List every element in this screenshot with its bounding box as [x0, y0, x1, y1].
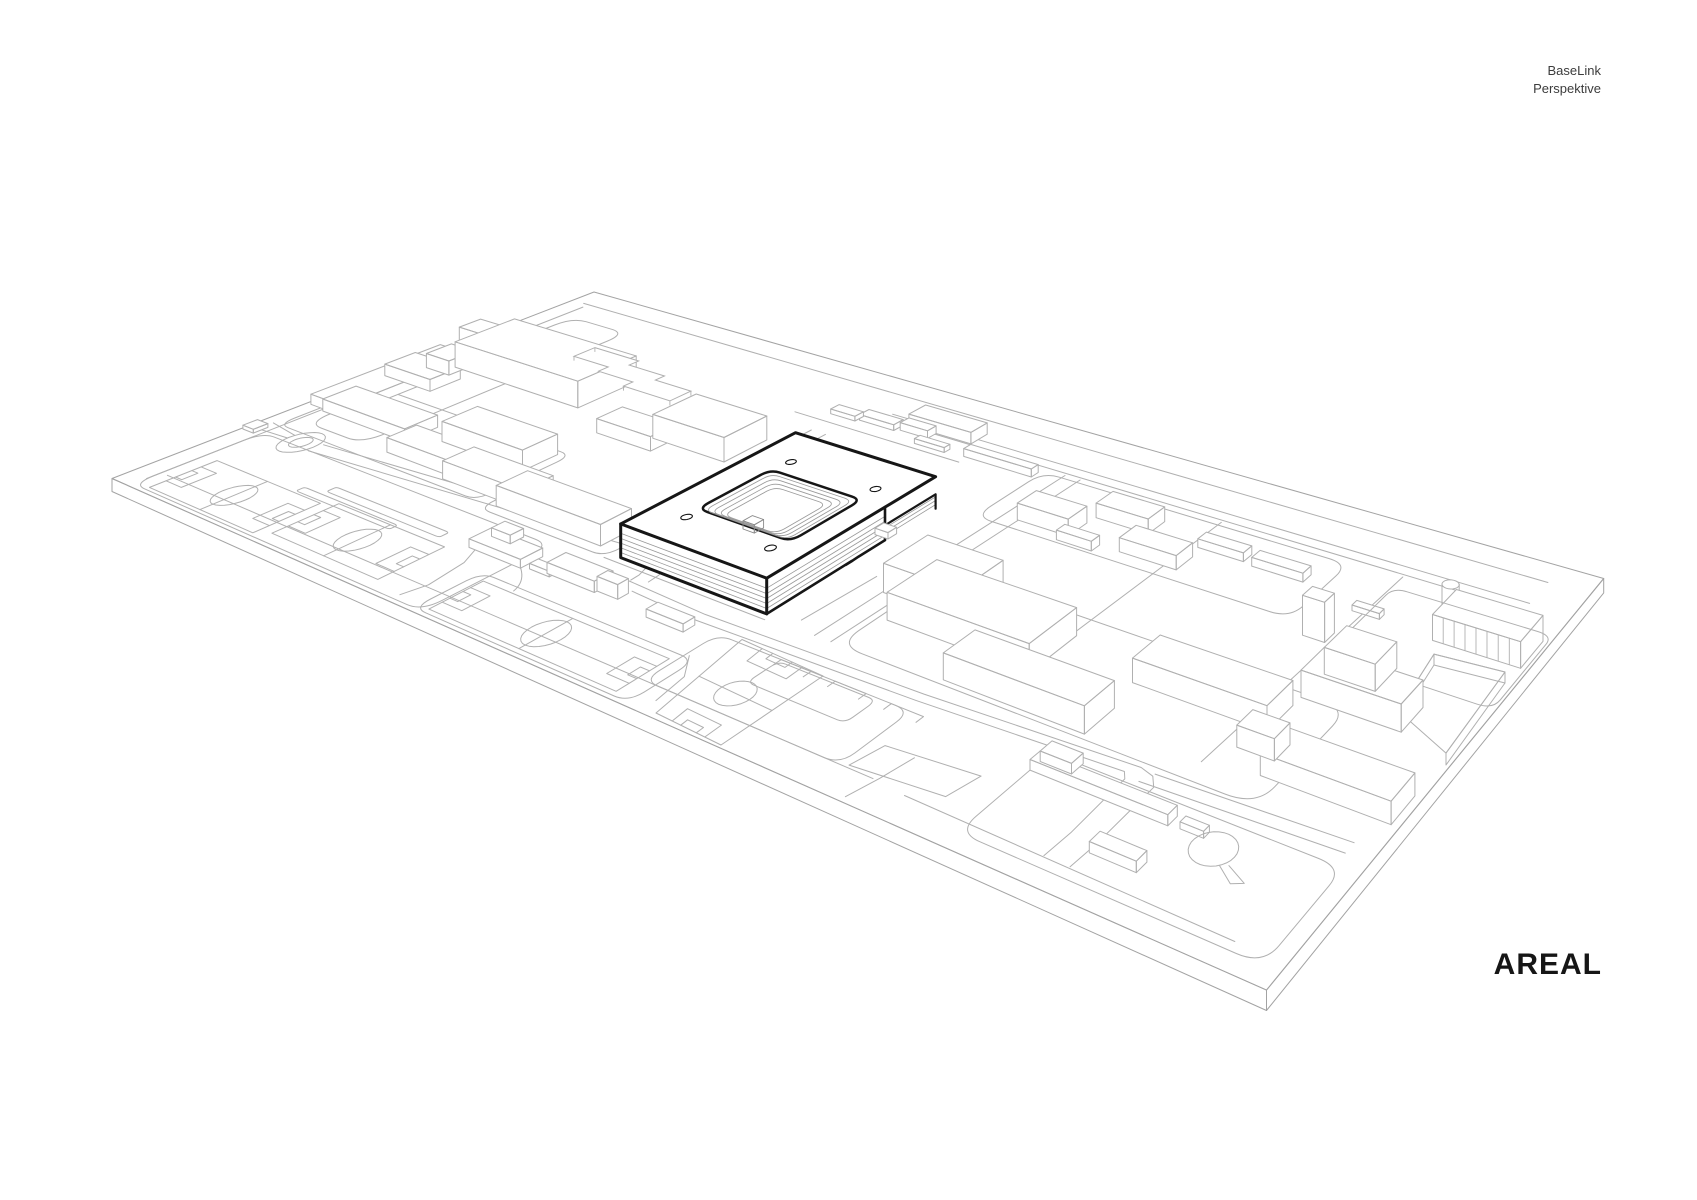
- svg-text:AREAL: AREAL: [1494, 948, 1602, 981]
- svg-text:Perspektive: Perspektive: [1533, 81, 1601, 96]
- svg-text:BaseLink: BaseLink: [1548, 63, 1602, 78]
